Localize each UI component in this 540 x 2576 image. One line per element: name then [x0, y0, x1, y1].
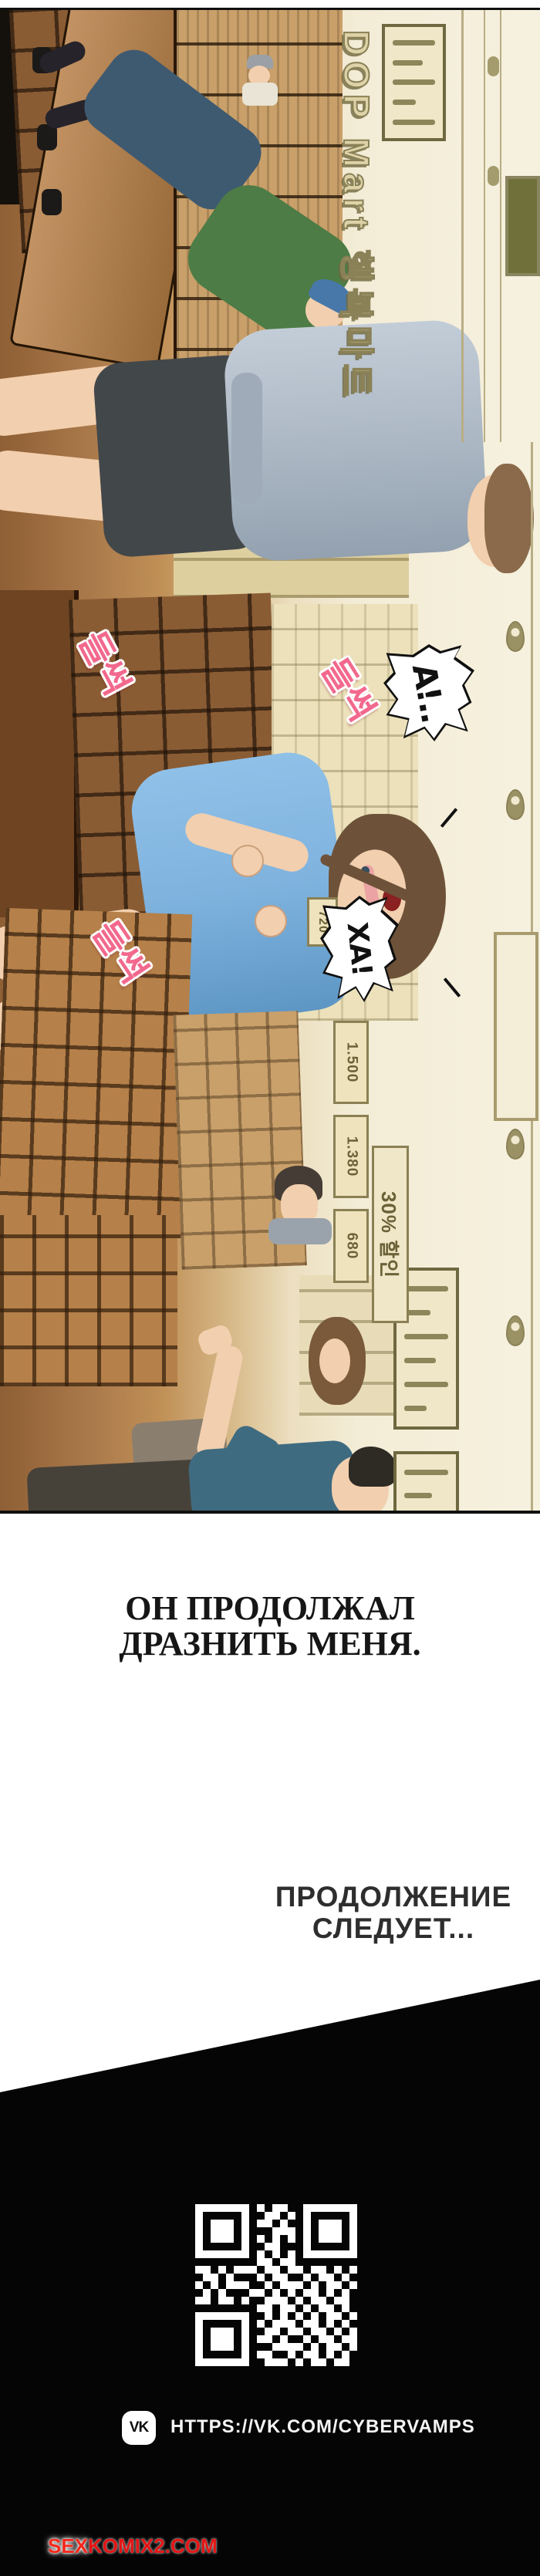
qr-module	[234, 2304, 241, 2312]
qr-module	[295, 2243, 303, 2250]
qr-module	[195, 2243, 203, 2250]
qr-module	[265, 2335, 272, 2343]
qr-module	[211, 2312, 218, 2320]
qr-module	[234, 2250, 241, 2258]
qr-module	[249, 2328, 257, 2335]
qr-module	[303, 2320, 311, 2328]
qr-module	[326, 2358, 334, 2366]
qr-module	[311, 2281, 319, 2289]
qr-module	[195, 2274, 203, 2281]
qr-module	[295, 2227, 303, 2235]
qr-module	[295, 2235, 303, 2243]
qr-module	[288, 2289, 295, 2297]
qr-module	[311, 2227, 319, 2235]
qr-module	[295, 2212, 303, 2220]
qr-module	[272, 2320, 280, 2328]
qr-module	[326, 2220, 334, 2227]
qr-module	[272, 2212, 280, 2220]
qr-module	[303, 2204, 311, 2212]
qr-module	[288, 2304, 295, 2312]
qr-module	[272, 2274, 280, 2281]
qr-module	[211, 2220, 218, 2227]
qr-module	[303, 2351, 311, 2358]
qr-module	[265, 2235, 272, 2243]
qr-module	[203, 2328, 211, 2335]
qr-module	[249, 2343, 257, 2351]
qr-module	[195, 2351, 203, 2358]
qr-module	[342, 2235, 349, 2243]
qr-module	[241, 2274, 249, 2281]
qr-module	[280, 2274, 288, 2281]
teal-man-pants	[26, 1459, 208, 1514]
qr-module	[211, 2204, 218, 2212]
qr-module	[226, 2258, 234, 2266]
qr-module	[311, 2343, 319, 2351]
qr-module	[211, 2212, 218, 2220]
qr-module	[195, 2312, 203, 2320]
qr-module	[288, 2297, 295, 2304]
qr-module	[195, 2235, 203, 2243]
qr-module	[295, 2358, 303, 2366]
qr-module	[195, 2204, 203, 2212]
qr-module	[288, 2358, 295, 2366]
qr-module	[265, 2343, 272, 2351]
qr-module	[226, 2351, 234, 2358]
qr-module	[303, 2250, 311, 2258]
qr-module	[203, 2312, 211, 2320]
qr-module	[311, 2220, 319, 2227]
qr-module	[265, 2289, 272, 2297]
qr-module	[265, 2258, 272, 2266]
qr-module	[218, 2335, 226, 2343]
qr-module	[249, 2235, 257, 2243]
qr-module	[303, 2235, 311, 2243]
qr-module	[272, 2235, 280, 2243]
qr-module	[226, 2304, 234, 2312]
continued-line-1: ПРОДОЛЖЕНИЕ	[247, 1881, 540, 1913]
qr-module	[234, 2227, 241, 2235]
door-frame-line	[484, 10, 485, 442]
qr-module	[249, 2274, 257, 2281]
qr-module	[211, 2274, 218, 2281]
qr-module	[218, 2235, 226, 2243]
qr-module	[326, 2266, 334, 2274]
qr-module	[319, 2274, 326, 2281]
qr-module	[295, 2312, 303, 2320]
qr-module	[288, 2320, 295, 2328]
qr-module	[265, 2274, 272, 2281]
watermark-suffix: KOMIX2.COM	[88, 2534, 218, 2557]
qr-module	[272, 2289, 280, 2297]
qr-module	[226, 2343, 234, 2351]
qr-module	[195, 2335, 203, 2343]
qr-module	[326, 2274, 334, 2281]
qr-module	[295, 2250, 303, 2258]
qr-module	[280, 2328, 288, 2335]
qr-module	[280, 2289, 288, 2297]
qr-module	[319, 2281, 326, 2289]
qr-module	[303, 2227, 311, 2235]
qr-module	[272, 2220, 280, 2227]
qr-module	[257, 2281, 265, 2289]
qr-module	[218, 2343, 226, 2351]
qr-module	[203, 2250, 211, 2258]
qr-module	[311, 2328, 319, 2335]
qr-module	[334, 2227, 342, 2235]
qr-module	[241, 2227, 249, 2235]
qr-module	[241, 2297, 249, 2304]
qr-module	[295, 2289, 303, 2297]
qr-module	[326, 2304, 334, 2312]
qr-module	[241, 2312, 249, 2320]
qr-module	[218, 2320, 226, 2328]
qr-module	[265, 2358, 272, 2366]
qr-module	[211, 2358, 218, 2366]
qr-module	[342, 2266, 349, 2274]
qr-module	[195, 2289, 203, 2297]
qr-module	[288, 2227, 295, 2235]
qr-module	[226, 2243, 234, 2250]
wall-ornament	[506, 621, 525, 652]
qr-module	[326, 2351, 334, 2358]
wall-ornament	[506, 1315, 525, 1346]
qr-module	[272, 2343, 280, 2351]
qr-module	[195, 2328, 203, 2335]
vk-logo-text: VK	[130, 2419, 148, 2436]
qr-module	[295, 2281, 303, 2289]
qr-module	[342, 2227, 349, 2235]
qr-module	[311, 2266, 319, 2274]
qr-module	[203, 2258, 211, 2266]
qr-module	[218, 2289, 226, 2297]
qr-module	[234, 2204, 241, 2212]
qr-module	[203, 2220, 211, 2227]
woman-hand	[255, 905, 287, 937]
qr-module	[280, 2204, 288, 2212]
qr-module	[319, 2243, 326, 2250]
qr-module	[349, 2304, 357, 2312]
qr-module	[226, 2204, 234, 2212]
qr-module	[280, 2243, 288, 2250]
qr-module	[342, 2289, 349, 2297]
door-window	[505, 176, 540, 276]
qr-module	[295, 2335, 303, 2343]
qr-module	[303, 2220, 311, 2227]
qr-module	[218, 2227, 226, 2235]
qr-module	[241, 2304, 249, 2312]
qr-module	[280, 2297, 288, 2304]
qr-module	[211, 2243, 218, 2250]
qr-module	[295, 2328, 303, 2335]
qr-module	[280, 2235, 288, 2243]
qr-module	[288, 2274, 295, 2281]
qr-module	[280, 2343, 288, 2351]
price-tag: 1.380	[333, 1115, 369, 1198]
qr-module	[203, 2351, 211, 2358]
qr-module	[295, 2274, 303, 2281]
qr-module	[280, 2312, 288, 2320]
qr-module	[303, 2335, 311, 2343]
qr-module	[265, 2281, 272, 2289]
qr-module	[249, 2289, 257, 2297]
qr-module	[265, 2304, 272, 2312]
qr-module	[234, 2258, 241, 2266]
qr-module	[303, 2281, 311, 2289]
site-watermark: SEXKOMIX2.COM	[48, 2534, 218, 2558]
qr-module	[349, 2274, 357, 2281]
qr-module	[241, 2250, 249, 2258]
qr-module	[319, 2235, 326, 2243]
qr-module	[203, 2358, 211, 2366]
qr-module	[249, 2304, 257, 2312]
qr-module	[342, 2304, 349, 2312]
qr-module	[311, 2297, 319, 2304]
qr-module	[234, 2312, 241, 2320]
qr-module	[272, 2358, 280, 2366]
qr-module	[326, 2320, 334, 2328]
qr-module	[234, 2297, 241, 2304]
qr-module	[334, 2320, 342, 2328]
qr-module	[257, 2328, 265, 2335]
qr-module	[326, 2312, 334, 2320]
qr-module	[319, 2297, 326, 2304]
qr-module	[226, 2220, 234, 2227]
qr-module	[211, 2335, 218, 2343]
man-b-hair	[484, 464, 534, 573]
qr-module	[319, 2312, 326, 2320]
qr-module	[234, 2335, 241, 2343]
qr-module	[319, 2358, 326, 2366]
qr-module	[218, 2274, 226, 2281]
qr-module	[257, 2358, 265, 2366]
qr-module	[349, 2250, 357, 2258]
qr-module	[234, 2343, 241, 2351]
qr-module	[326, 2227, 334, 2235]
qr-module	[280, 2351, 288, 2358]
qr-module	[257, 2312, 265, 2320]
qr-module	[280, 2281, 288, 2289]
qr-module	[342, 2281, 349, 2289]
qr-module	[272, 2312, 280, 2320]
vk-community-url: HTTPS://VK.COM/CYBERVAMPS	[170, 2416, 475, 2438]
qr-module	[303, 2289, 311, 2297]
qr-module	[342, 2312, 349, 2320]
qr-module	[288, 2335, 295, 2343]
qr-module	[319, 2220, 326, 2227]
qr-module	[319, 2250, 326, 2258]
qr-module	[272, 2304, 280, 2312]
qr-module	[241, 2204, 249, 2212]
wall-frame	[494, 932, 538, 1121]
qr-module	[319, 2343, 326, 2351]
qr-module	[234, 2235, 241, 2243]
qr-module	[218, 2250, 226, 2258]
qr-module	[311, 2212, 319, 2220]
qr-module	[218, 2204, 226, 2212]
qr-module	[249, 2204, 257, 2212]
qr-module	[234, 2220, 241, 2227]
qr-module	[257, 2274, 265, 2281]
qr-module	[211, 2258, 218, 2266]
qr-module	[334, 2358, 342, 2366]
qr-module	[249, 2266, 257, 2274]
qr-module	[257, 2243, 265, 2250]
qr-module	[326, 2258, 334, 2266]
qr-module	[280, 2258, 288, 2266]
qr-module	[280, 2320, 288, 2328]
qr-module	[234, 2243, 241, 2250]
qr-module	[303, 2358, 311, 2366]
qr-module	[226, 2235, 234, 2243]
clerk-face	[319, 1339, 350, 1383]
qr-module	[203, 2235, 211, 2243]
qr-module	[241, 2235, 249, 2243]
qr-module	[203, 2343, 211, 2351]
qr-module	[334, 2328, 342, 2335]
qr-module	[226, 2212, 234, 2220]
qr-module	[311, 2320, 319, 2328]
qr-module	[334, 2204, 342, 2212]
qr-module	[218, 2281, 226, 2289]
qr-module	[249, 2250, 257, 2258]
qr-module	[288, 2312, 295, 2320]
qr-module	[226, 2289, 234, 2297]
qr-module	[311, 2243, 319, 2250]
qr-module	[226, 2358, 234, 2366]
qr-module	[195, 2227, 203, 2235]
qr-module	[203, 2335, 211, 2343]
qr-module	[334, 2220, 342, 2227]
qr-module	[257, 2289, 265, 2297]
qr-module	[288, 2250, 295, 2258]
qr-module	[241, 2343, 249, 2351]
qr-module	[195, 2250, 203, 2258]
qr-module	[334, 2281, 342, 2289]
qr-module	[342, 2335, 349, 2343]
qr-module	[211, 2304, 218, 2312]
qr-module	[326, 2281, 334, 2289]
qr-module	[257, 2320, 265, 2328]
qr-module	[280, 2304, 288, 2312]
qr-module	[280, 2220, 288, 2227]
qr-module	[280, 2266, 288, 2274]
qr-module	[342, 2258, 349, 2266]
qr-module	[326, 2335, 334, 2343]
qr-module	[288, 2281, 295, 2289]
qr-module	[241, 2220, 249, 2227]
qr-module	[295, 2204, 303, 2212]
qr-module	[311, 2312, 319, 2320]
qr-module	[303, 2266, 311, 2274]
qr-module	[241, 2320, 249, 2328]
qr-module	[226, 2335, 234, 2343]
qr-module	[311, 2204, 319, 2212]
qr-module	[326, 2297, 334, 2304]
qr-module	[272, 2335, 280, 2343]
door-frame-line	[461, 10, 464, 442]
qr-module	[319, 2320, 326, 2328]
qr-module	[349, 2220, 357, 2227]
qr-module	[272, 2250, 280, 2258]
qr-module	[265, 2212, 272, 2220]
qr-module	[257, 2297, 265, 2304]
qr-module	[349, 2243, 357, 2250]
qr-module	[288, 2212, 295, 2220]
qr-module	[195, 2343, 203, 2351]
qr-module	[226, 2281, 234, 2289]
qr-module	[257, 2227, 265, 2235]
qr-module	[311, 2289, 319, 2297]
qr-module	[319, 2351, 326, 2358]
qr-module	[234, 2328, 241, 2335]
qr-module	[303, 2312, 311, 2320]
qr-module	[349, 2335, 357, 2343]
qr-module	[211, 2328, 218, 2335]
wall-sign-framed	[382, 24, 446, 141]
qr-module	[303, 2274, 311, 2281]
qr-module	[203, 2227, 211, 2235]
store-sign-text: DOP Mart 행복마트	[333, 30, 384, 402]
qr-module	[226, 2227, 234, 2235]
qr-module	[257, 2212, 265, 2220]
qr-module	[342, 2343, 349, 2351]
qr-module	[288, 2204, 295, 2212]
qr-module	[211, 2250, 218, 2258]
qr-module	[203, 2320, 211, 2328]
qr-module	[342, 2274, 349, 2281]
qr-module	[195, 2258, 203, 2266]
qr-module	[203, 2212, 211, 2220]
qr-module	[249, 2320, 257, 2328]
qr-module	[319, 2328, 326, 2335]
qr-module	[195, 2212, 203, 2220]
qr-module	[295, 2351, 303, 2358]
qr-module	[265, 2250, 272, 2258]
qr-module	[349, 2312, 357, 2320]
qr-module	[226, 2320, 234, 2328]
qr-module	[303, 2258, 311, 2266]
qr-module	[295, 2258, 303, 2266]
teal-man-hair	[349, 1447, 397, 1487]
qr-module	[218, 2328, 226, 2335]
qr-module	[257, 2351, 265, 2358]
qr-module	[257, 2335, 265, 2343]
qr-module	[265, 2351, 272, 2358]
vk-logo-icon: VK	[122, 2411, 156, 2445]
qr-module	[249, 2351, 257, 2358]
qr-module	[203, 2289, 211, 2297]
lower-rack-2	[0, 1215, 177, 1386]
qr-module	[211, 2351, 218, 2358]
qr-module	[249, 2258, 257, 2266]
qr-module	[280, 2335, 288, 2343]
qr-module	[195, 2281, 203, 2289]
qr-module	[195, 2266, 203, 2274]
qr-module	[272, 2351, 280, 2358]
narration-caption: ОН ПРОДОЛЖАЛ ДРАЗНИТЬ МЕНЯ.	[0, 1591, 540, 1662]
qr-module	[272, 2266, 280, 2274]
qr-module	[334, 2351, 342, 2358]
qr-module	[234, 2289, 241, 2297]
qr-module	[234, 2281, 241, 2289]
qr-module	[226, 2328, 234, 2335]
qr-module	[241, 2328, 249, 2335]
qr-module	[203, 2266, 211, 2274]
qr-module	[288, 2235, 295, 2243]
qr-module	[211, 2297, 218, 2304]
peeking-man-shoulder	[268, 1218, 332, 1244]
qr-module	[257, 2258, 265, 2266]
